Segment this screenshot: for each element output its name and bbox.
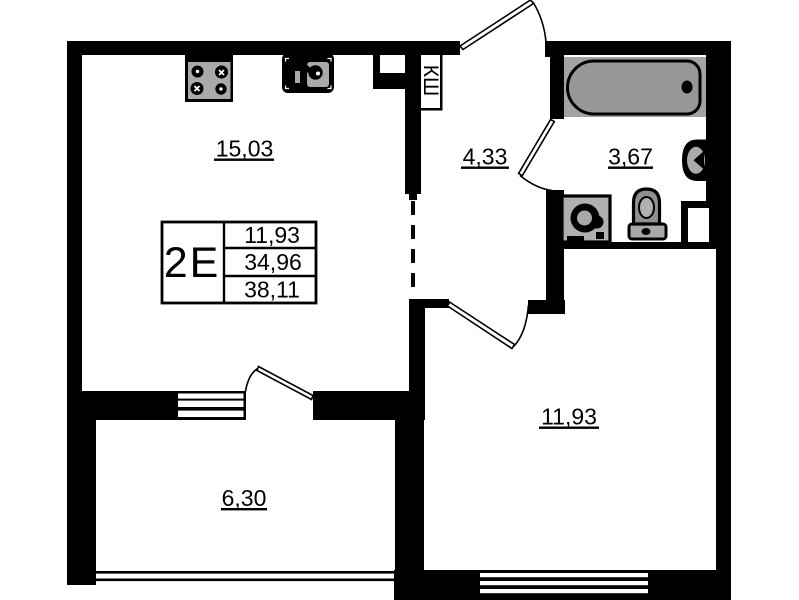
svg-text:38,11: 38,11	[244, 277, 300, 303]
svg-text:11,93: 11,93	[541, 404, 597, 430]
svg-text:КШ: КШ	[419, 65, 442, 96]
svg-text:4,33: 4,33	[463, 144, 508, 170]
svg-text:6,30: 6,30	[222, 485, 267, 511]
svg-text:2Е: 2Е	[164, 239, 221, 287]
svg-text:34,96: 34,96	[244, 249, 302, 275]
svg-text:3,67: 3,67	[608, 144, 653, 170]
svg-text:11,93: 11,93	[244, 222, 300, 248]
svg-text:15,03: 15,03	[216, 136, 274, 162]
